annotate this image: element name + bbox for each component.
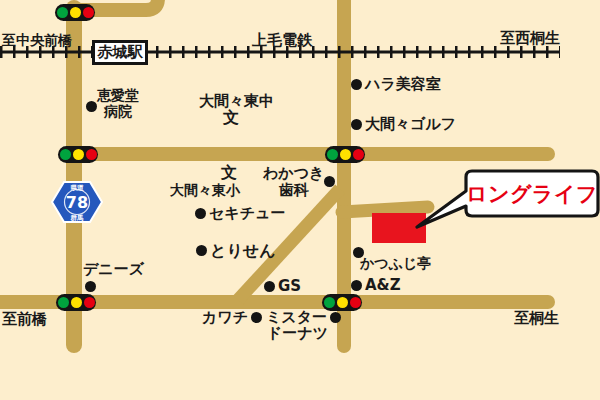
station-box: 赤城駅 (92, 40, 148, 65)
location-dot (195, 208, 206, 219)
route-78-sign: 県道 78 群馬 (52, 182, 102, 222)
access-map: 県道 78 群馬 赤城駅 至中央前橋 上毛電鉄 至西桐生 至前橋 至桐生 恵愛堂… (0, 0, 600, 400)
traffic-light-icon (55, 4, 95, 21)
red-light-icon (86, 149, 97, 160)
red-light-icon (84, 297, 95, 308)
school-symbol-junior-high: 文 (223, 109, 239, 127)
direction-west: 至中央前橋 (2, 33, 72, 49)
label-beauty-salon: ハラ美容室 (351, 76, 441, 93)
traffic-light-icon (58, 146, 98, 163)
label-elementary: 大間々東小 (170, 183, 240, 199)
location-dot (351, 79, 362, 90)
yellow-light-icon (73, 149, 84, 160)
label-sekichu: セキチュー (195, 205, 285, 222)
yellow-light-icon (340, 149, 351, 160)
route-sign-top-text: 県道 (70, 184, 85, 192)
yellow-light-icon (71, 297, 82, 308)
direction-southwest: 至前橋 (2, 311, 47, 328)
label-kawachi: カワチ (202, 309, 262, 326)
label-torisen: とりせん (196, 242, 276, 260)
route-sign-number: 78 (66, 193, 88, 212)
location-dot (251, 312, 262, 323)
label-dental: わかつき 歯科 (263, 165, 324, 199)
location-dot (351, 280, 362, 291)
label-az: A&Z (351, 277, 401, 294)
route-sign-bottom-text: 群馬 (70, 214, 85, 222)
callout-label: ロングライフ (466, 171, 598, 216)
green-light-icon (57, 7, 68, 18)
green-light-icon (327, 149, 338, 160)
traffic-light-icon (325, 146, 365, 163)
green-light-icon (60, 149, 71, 160)
location-dot (86, 101, 97, 112)
label-katsufuji: かつふじ亭 (360, 256, 431, 272)
location-dot (264, 281, 275, 292)
location-dot (196, 245, 207, 256)
label-golf: 大間々ゴルフ (351, 116, 456, 133)
station-name: 赤城駅 (98, 43, 143, 62)
label-hospital: 恵愛堂 病院 (97, 88, 139, 119)
direction-east: 至西桐生 (500, 30, 560, 47)
label-dennys: デニーズ (83, 261, 144, 278)
red-light-icon (353, 149, 364, 160)
road-longlife-branch (342, 207, 428, 212)
green-light-icon (58, 297, 69, 308)
direction-southeast: 至桐生 (514, 310, 559, 327)
yellow-light-icon (337, 297, 348, 308)
red-light-icon (350, 297, 361, 308)
red-light-icon (83, 7, 94, 18)
location-dot (330, 312, 341, 323)
location-dot (85, 281, 96, 292)
school-symbol-elementary: 文 (221, 164, 237, 182)
location-dot (351, 119, 362, 130)
label-mister-donut-line2: ドーナツ (267, 325, 328, 342)
green-light-icon (324, 297, 335, 308)
traffic-light-icon (56, 294, 96, 311)
railway-name: 上毛電鉄 (252, 32, 312, 49)
label-gs: GS (264, 278, 301, 295)
yellow-light-icon (70, 7, 81, 18)
location-dot (324, 176, 335, 187)
